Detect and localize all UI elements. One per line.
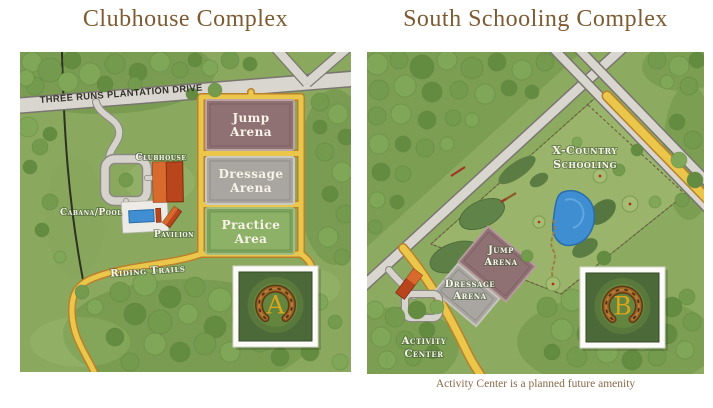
badge-letter-b: B [613, 292, 631, 321]
circle-drive-tree [119, 173, 133, 187]
svg-text:Arena: Arena [483, 257, 517, 268]
clubhouse-building [153, 162, 184, 203]
svg-text:Area: Area [234, 232, 268, 246]
svg-text:Jump: Jump [231, 111, 269, 125]
svg-text:Arena: Arena [229, 125, 272, 139]
inset-badge-b: B [580, 267, 668, 351]
svg-text:Jump: Jump [487, 245, 514, 256]
south-schooling-map-panel: X-Country Schooling Jump Arena Dressage … [367, 52, 704, 374]
svg-text:Dressage: Dressage [219, 167, 284, 181]
svg-text:Arena: Arena [452, 291, 486, 302]
badge-letter-a: A [265, 291, 285, 320]
activity-center-footnote: Activity Center is a planned future amen… [367, 378, 704, 390]
clubhouse-map-panel: THREE RUNS PLANTATION DRIVE Clubhouse Ca… [20, 52, 351, 372]
svg-text:Practice: Practice [222, 218, 281, 232]
inset-badge-a: A [233, 266, 321, 350]
cabana-pool-label: Cabana/Pool [60, 208, 122, 218]
svg-text:X-Country: X-Country [552, 144, 617, 157]
jump-arena-label: Jump Arena [483, 245, 517, 268]
clubhouse-label: Clubhouse [136, 153, 187, 163]
brochure-page: Clubhouse Complex South Schooling Comple… [0, 0, 713, 408]
pavilion-label: Pavilion [154, 230, 194, 240]
svg-text:Dressage: Dressage [445, 279, 496, 290]
clubhouse-map-graphic: THREE RUNS PLANTATION DRIVE Clubhouse Ca… [20, 52, 351, 372]
cabana-pool-area [121, 200, 169, 233]
svg-text:Schooling: Schooling [553, 158, 617, 171]
svg-text:Arena: Arena [229, 181, 272, 195]
svg-text:Activity: Activity [401, 336, 447, 347]
jump-arena-label: Jump Arena [229, 111, 272, 139]
x-country-schooling-label: X-Country Schooling [552, 144, 617, 171]
clubhouse-title: Clubhouse Complex [20, 6, 351, 33]
svg-text:Center: Center [404, 349, 443, 360]
south-schooling-map-graphic: X-Country Schooling Jump Arena Dressage … [367, 52, 704, 374]
south-schooling-title: South Schooling Complex [367, 6, 704, 33]
